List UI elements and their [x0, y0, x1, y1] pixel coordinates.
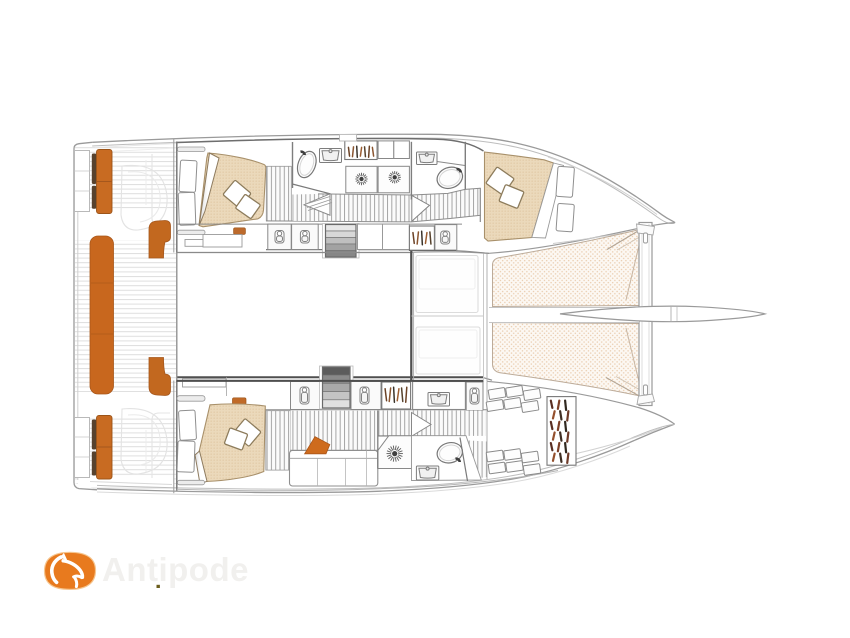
svg-text:Antipode: Antipode [102, 551, 249, 588]
